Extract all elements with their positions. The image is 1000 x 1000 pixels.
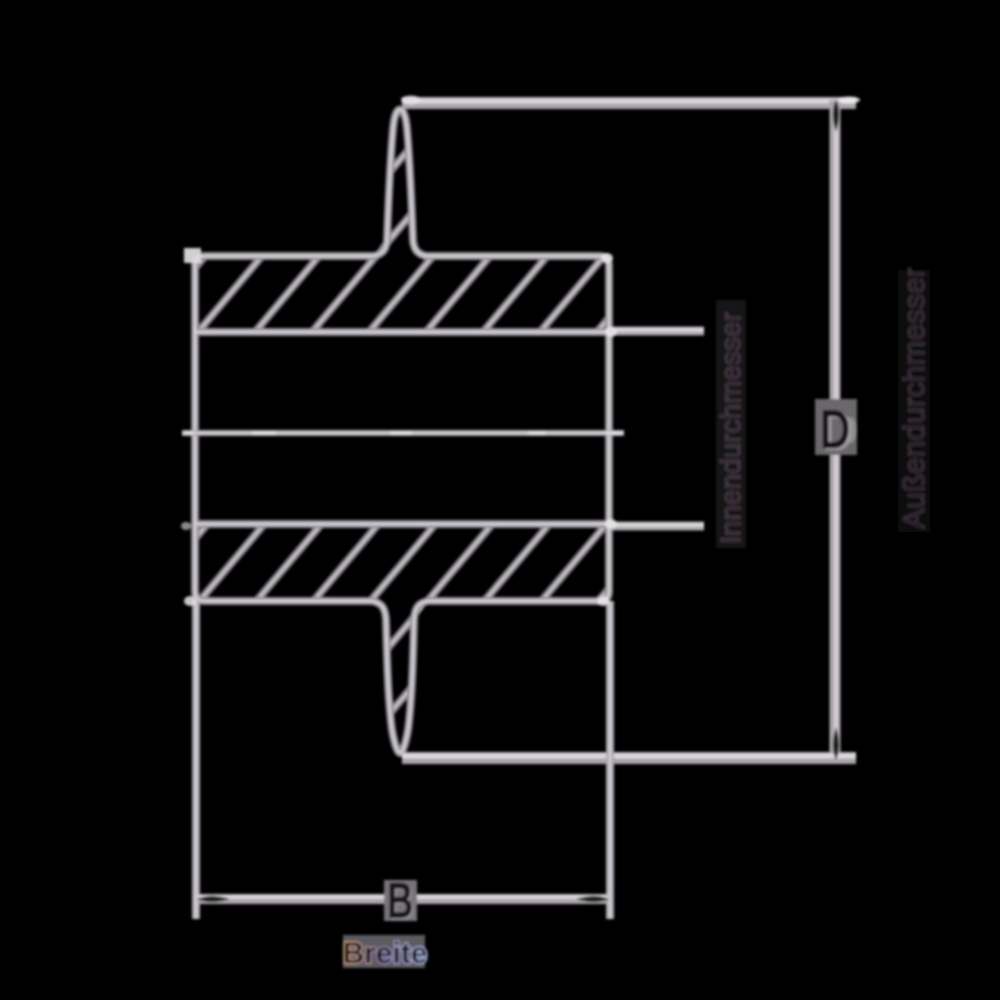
svg-text:Innendurchmesser: Innendurchmesser <box>715 312 746 544</box>
svg-text:D: D <box>820 400 849 458</box>
svg-text:Außendurchmesser: Außendurchmesser <box>898 267 931 529</box>
svg-text:Breite: Breite <box>342 937 427 970</box>
svg-text:B: B <box>387 875 413 928</box>
